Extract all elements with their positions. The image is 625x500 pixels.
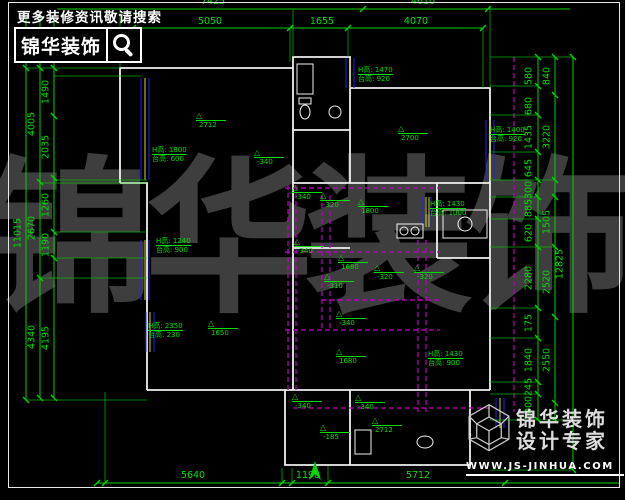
search-button[interactable]: [108, 29, 140, 61]
walls: [120, 57, 490, 465]
brand-search-box[interactable]: 锦华装饰: [14, 27, 142, 63]
cube-wireframe-icon: [466, 402, 512, 458]
cad-floorplan-screenshot: 锦华装饰: [0, 0, 625, 500]
brand-name: 锦华装饰: [16, 32, 106, 59]
magnifier-icon: [112, 33, 136, 57]
footer-logo: 锦华装饰 设计专家 WWW.JS-JINHUA.COM: [466, 402, 624, 476]
header-slogan: 更多装修资讯敬请搜索: [17, 6, 162, 26]
logo-brand-line2: 设计专家: [516, 430, 608, 452]
ceiling-dashed-lines: [285, 57, 514, 412]
fixtures: [297, 64, 487, 454]
website-link[interactable]: WWW.JS-JINHUA.COM: [466, 461, 624, 476]
entry-arrow-icon: [309, 461, 321, 480]
logo-brand-line1: 锦华装饰: [516, 408, 608, 430]
